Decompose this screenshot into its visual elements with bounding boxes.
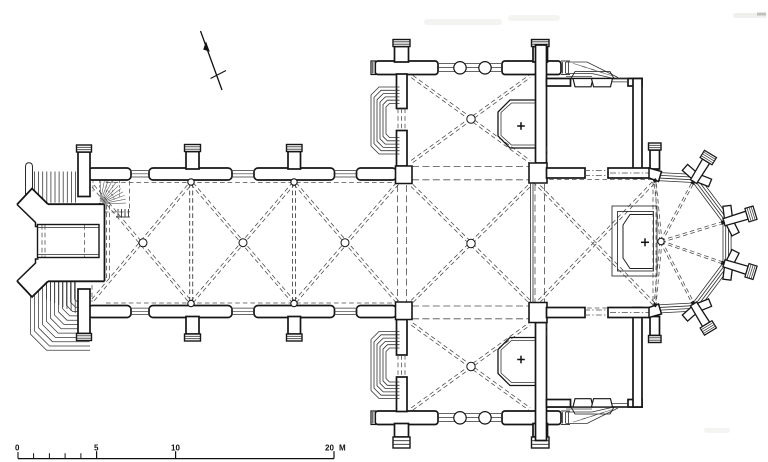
svg-text:5: 5	[94, 444, 99, 453]
svg-text:20: 20	[325, 444, 334, 453]
svg-text:0: 0	[15, 444, 20, 453]
svg-text:M: M	[339, 444, 346, 453]
svg-text:10: 10	[171, 444, 180, 453]
